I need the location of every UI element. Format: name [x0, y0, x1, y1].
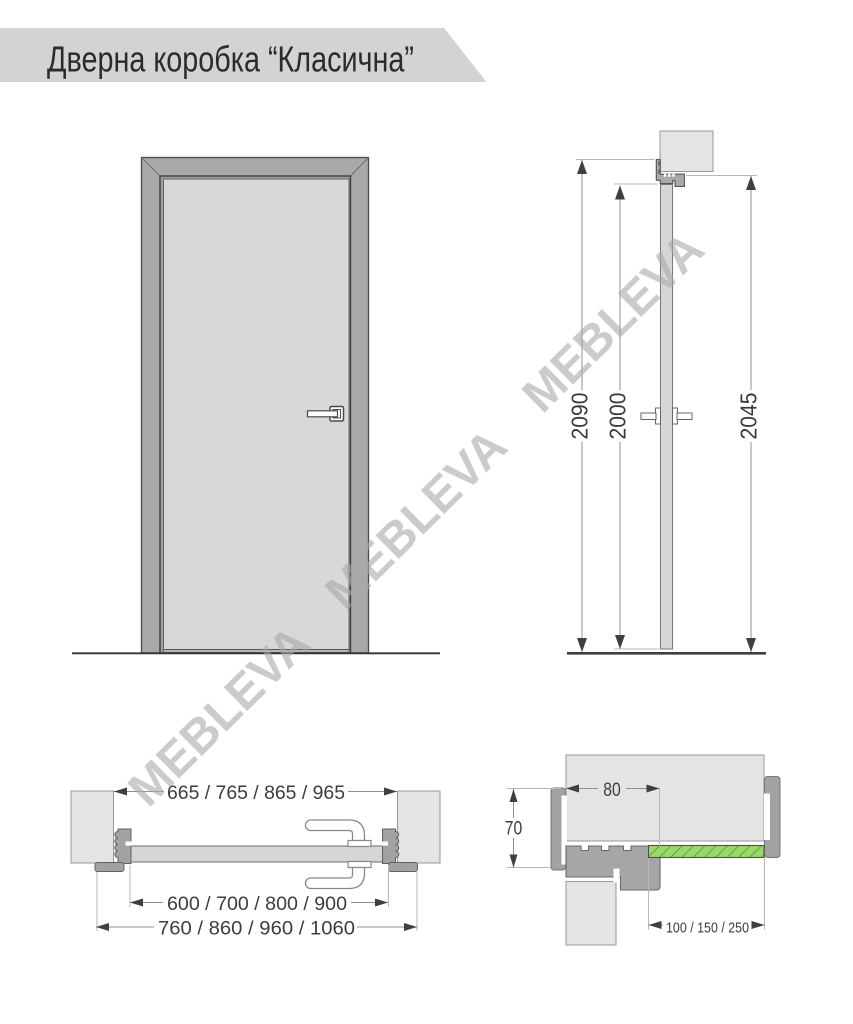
svg-text:2000: 2000 [605, 393, 631, 440]
svg-text:2045: 2045 [736, 393, 762, 440]
svg-text:Дверна коробка “Класична”: Дверна коробка “Класична” [47, 39, 414, 80]
svg-text:70: 70 [505, 818, 523, 840]
svg-text:760 / 860 / 960 / 1060: 760 / 860 / 960 / 1060 [158, 917, 355, 939]
svg-text:100 / 150 / 250: 100 / 150 / 250 [666, 921, 749, 937]
svg-text:80: 80 [603, 779, 621, 801]
svg-text:665 / 765 / 865 / 965: 665 / 765 / 865 / 965 [167, 782, 345, 804]
svg-text:600 / 700 / 800 / 900: 600 / 700 / 800 / 900 [167, 893, 347, 915]
